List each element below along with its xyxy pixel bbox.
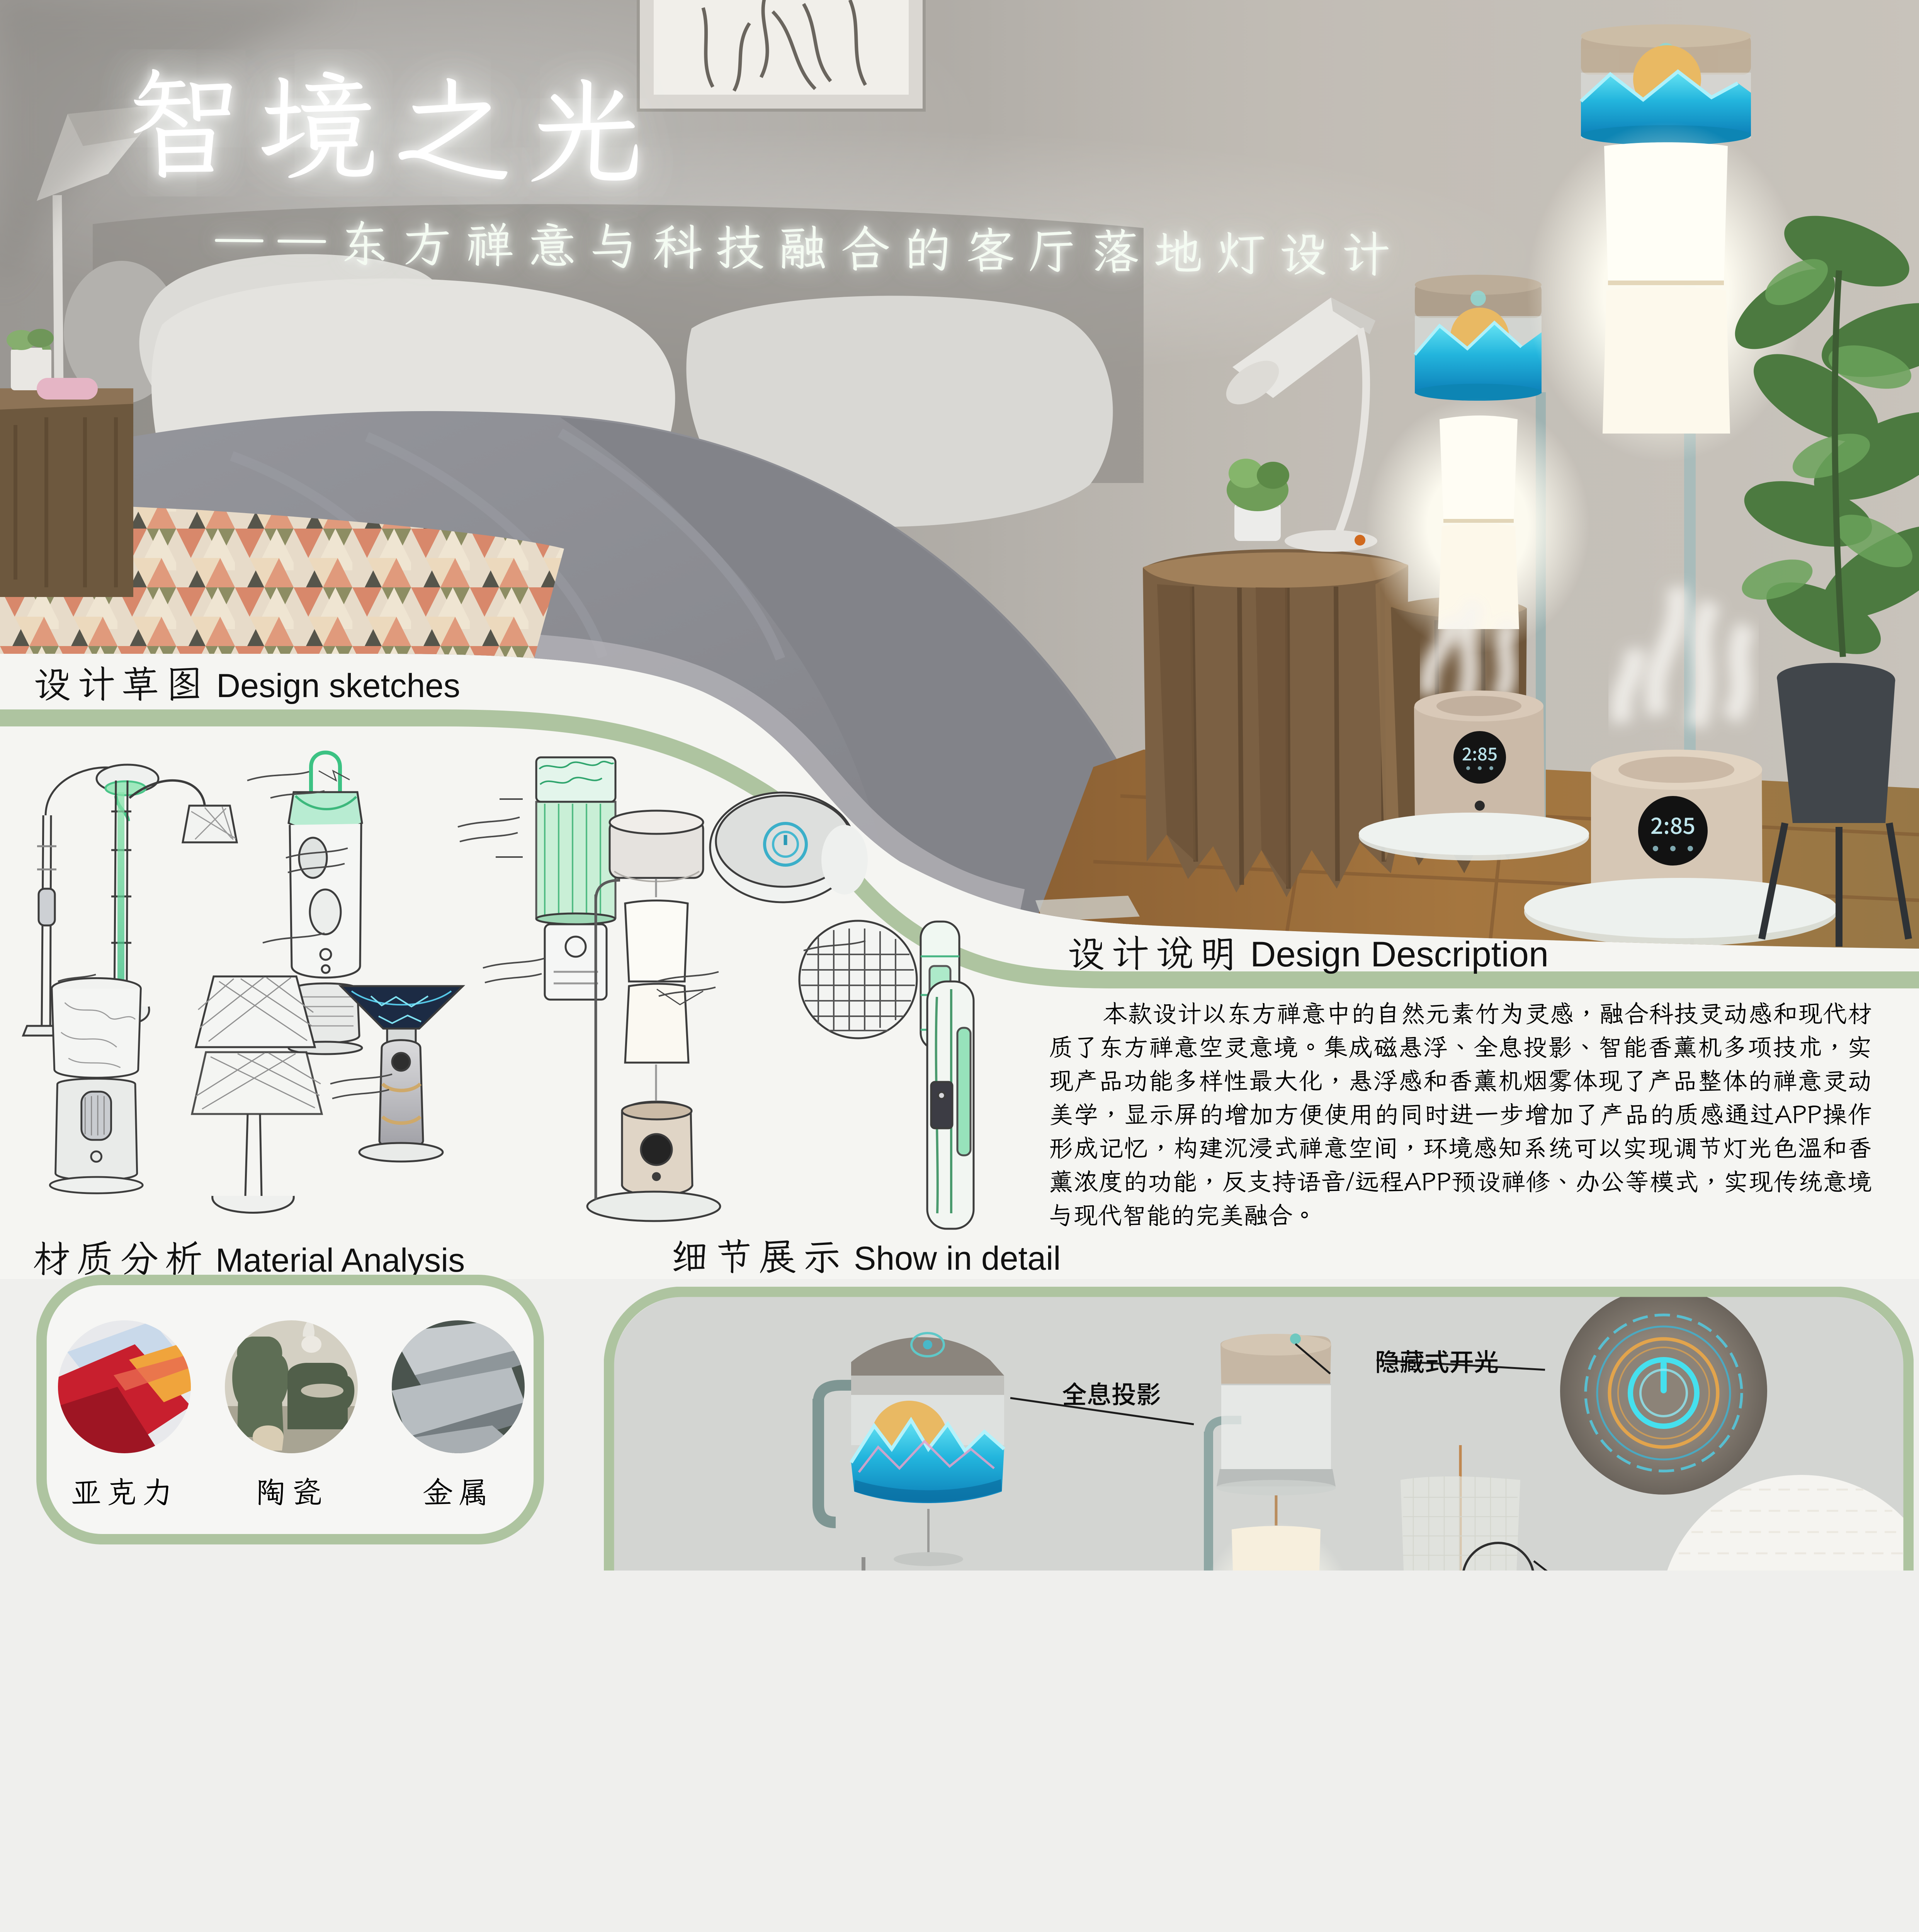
svg-text:香薰器出风口: 香薰器出风口 (1013, 1636, 1161, 1672)
svg-text:遮光罩纹理: 遮光罩纹理 (1525, 1641, 1649, 1677)
svg-text:金属: 金属 (423, 1472, 494, 1512)
svg-text:℃: ℃ (1655, 1872, 1667, 1887)
svg-text:26.5: 26.5 (1611, 1867, 1661, 1903)
svg-text:亚克力: 亚克力 (71, 1472, 178, 1512)
svg-text:陶瓷: 陶瓷 (256, 1472, 327, 1512)
svg-text:2:85: 2:85 (1650, 808, 1695, 840)
svg-text:全息投影: 全息投影 (1062, 1375, 1161, 1411)
svg-text:26.5: 26.5 (1302, 1834, 1333, 1856)
svg-text:隐藏式开光: 隐藏式开光 (1375, 1343, 1499, 1378)
svg-text:2:85: 2:85 (1462, 740, 1497, 766)
svg-text:显示LED屏: 显示LED屏 (1412, 1865, 1532, 1901)
svg-text:陶瓷底座: 陶瓷底座 (1091, 1833, 1190, 1869)
